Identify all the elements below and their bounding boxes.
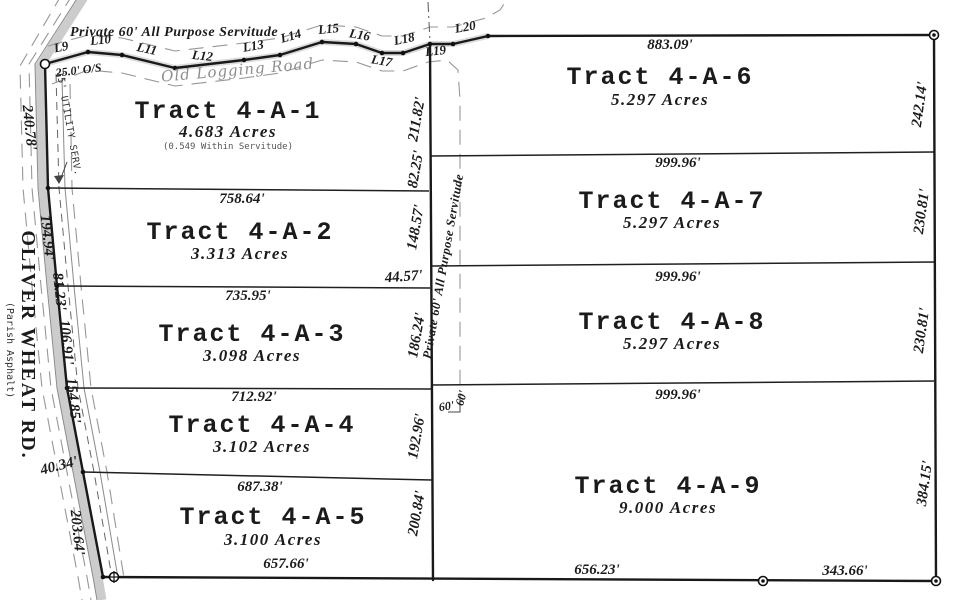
east-boundary-line xyxy=(934,35,936,581)
dim-192-96: 192.96' xyxy=(405,413,429,461)
dim-230-81-b: 230.81' xyxy=(911,307,933,355)
tract-4a3-title: Tract 4-A-3 xyxy=(158,320,345,349)
line-label-l14: L14 xyxy=(278,25,304,46)
monument-marker-ne-center xyxy=(932,33,936,37)
vertex-dot-8 xyxy=(401,51,406,56)
vertex-dot-15 xyxy=(81,470,86,475)
dim-200-84: 200.84' xyxy=(405,490,429,538)
line-label-l17: L17 xyxy=(369,51,394,70)
tract-4a9-acres: 9.000 Acres xyxy=(619,498,717,517)
dim-230-81-a: 230.81' xyxy=(911,188,933,236)
tract-4a4-title: Tract 4-A-4 xyxy=(168,411,355,440)
vertex-dot-5 xyxy=(320,40,325,45)
tract-4a5-acres: 3.100 Acres xyxy=(223,530,322,549)
tract-4a2-title: Tract 4-A-2 xyxy=(146,218,333,247)
monument-marker-south-mid-center xyxy=(761,579,765,583)
south-boundary-line xyxy=(103,577,936,581)
dim-82-25: 82.25' xyxy=(405,149,427,189)
dim-687-38: 687.38' xyxy=(237,479,282,495)
dim-999-96-a: 999.96' xyxy=(655,155,700,171)
vertex-dot-12 xyxy=(46,186,51,191)
line-label-l9: L9 xyxy=(51,38,70,56)
line-label-l15: L15 xyxy=(316,20,340,37)
tract-4a4-acres: 3.102 Acres xyxy=(212,437,311,456)
servitude-heading: Private 60' All Purpose Servitude xyxy=(70,25,278,40)
dim-148-57: 148.57' xyxy=(404,204,428,252)
dim-999-96-b: 999.96' xyxy=(655,269,700,285)
line-label-l18: L18 xyxy=(391,29,416,48)
line-label-l19: L19 xyxy=(423,42,447,59)
vertex-dot-16 xyxy=(101,575,106,580)
vertex-dot-6 xyxy=(354,42,359,47)
tract-4a5-title: Tract 4-A-5 xyxy=(179,503,366,532)
dim-211-82: 211.82' xyxy=(405,96,429,144)
tract-4a6-acres: 5.297 Acres xyxy=(611,90,709,109)
dim-44-57: 44.57' xyxy=(383,268,423,287)
dim-60-b: 60' xyxy=(452,388,470,407)
monument-marker-se-center xyxy=(934,579,938,583)
tract-4a1-acres: 4.683 Acres xyxy=(178,122,277,141)
dim-343-66: 343.66' xyxy=(821,563,867,579)
tract-4a8-title: Tract 4-A-8 xyxy=(578,308,765,337)
div-4a7-4a8 xyxy=(432,262,934,266)
road-name: OLIVER WHEAT RD. xyxy=(17,230,39,459)
div-4a8-4a9 xyxy=(432,381,934,385)
dim-999-96-c: 999.96' xyxy=(655,387,700,403)
tract-4a2-acres: 3.313 Acres xyxy=(190,244,289,263)
centerline-above-middle xyxy=(428,2,430,42)
tract-4a7-title: Tract 4-A-7 xyxy=(578,187,765,216)
dim-384-15: 384.15' xyxy=(914,460,936,508)
road-surface: (Parish Asphalt) xyxy=(4,302,15,398)
dim-656-23: 656.23' xyxy=(574,562,619,578)
line-label-l12: L12 xyxy=(190,47,214,64)
tract-4a1-note: (0.549 Within Servitude) xyxy=(163,142,293,152)
utility-leader-arrowhead xyxy=(54,175,64,184)
tract-4a7-acres: 5.297 Acres xyxy=(623,213,721,232)
plat-drawing: Tract 4-A-14.683 Acres(0.549 Within Serv… xyxy=(0,0,964,600)
tract-4a9-title: Tract 4-A-9 xyxy=(574,472,761,501)
vertex-dot-10 xyxy=(451,42,456,47)
plat-map-page: Tract 4-A-14.683 Acres(0.549 Within Serv… xyxy=(0,0,964,600)
dim-657-66: 657.66' xyxy=(263,556,308,572)
dim-735-95: 735.95' xyxy=(225,288,270,304)
line-label-l11: L11 xyxy=(135,39,159,58)
dim-758-64: 758.64' xyxy=(219,191,264,207)
vertex-dot-1 xyxy=(120,53,125,58)
monument-marker-nw xyxy=(41,60,50,69)
vertex-dot-11 xyxy=(486,34,491,39)
tract-4a8-acres: 5.297 Acres xyxy=(623,334,721,353)
line-label-l20: L20 xyxy=(453,17,478,36)
dim-883-09: 883.09' xyxy=(647,37,692,53)
tract-4a6-title: Tract 4-A-6 xyxy=(566,63,753,92)
dim-203-64: 203.64' xyxy=(67,508,88,556)
vertex-dot-0 xyxy=(86,50,91,55)
dim-242-14: 242.14' xyxy=(909,81,931,129)
dim-712-92: 712.92' xyxy=(231,389,276,405)
tract-4a3-acres: 3.098 Acres xyxy=(202,346,301,365)
